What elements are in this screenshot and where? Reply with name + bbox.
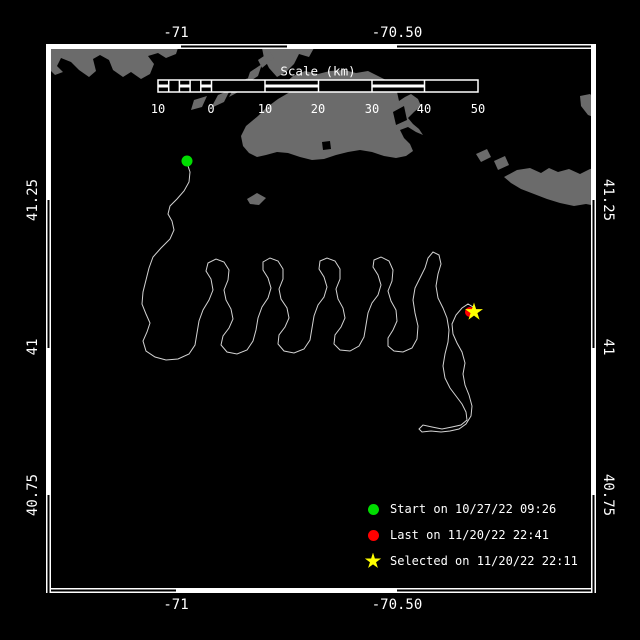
legend-start: Start on 10/27/22 09:26 — [364, 500, 556, 518]
bottom-lon-label-1: -71 — [163, 597, 188, 613]
left-lat-label-1: 41.25 — [25, 179, 41, 221]
map-canvas[interactable]: Scale (km) -71-70.50-71-70.5041.254140.7… — [0, 0, 640, 640]
scale-bar-stripe — [201, 85, 212, 88]
right-lat-label-3: 40.75 — [600, 474, 616, 516]
water-notch-pond — [322, 141, 331, 150]
left-lat-label-2: 41 — [25, 339, 41, 356]
frame-left — [46, 44, 51, 593]
star-icon — [364, 552, 382, 570]
left-lat-label-3: 40.75 — [25, 474, 41, 516]
legend-selected: Selected on 11/20/22 22:11 — [364, 552, 578, 570]
frame-bottom — [46, 588, 596, 593]
scale-bar-label-6: 50 — [471, 102, 485, 116]
frame-right — [591, 44, 596, 593]
scale-bar — [158, 80, 478, 92]
legend-last-label: Last on 11/20/22 22:41 — [390, 528, 549, 542]
legend-last: Last on 11/20/22 22:41 — [364, 526, 549, 544]
legend-selected-label: Selected on 11/20/22 22:11 — [390, 554, 578, 568]
scale-bar-label-0: 10 — [151, 102, 165, 116]
scale-bar-stripe — [158, 85, 169, 88]
legend-last-marker — [368, 530, 379, 541]
legend-start-marker — [368, 504, 379, 515]
scalebar-title: Scale (km) — [280, 64, 355, 79]
bottom-lon-label-2: -70.50 — [372, 597, 423, 613]
scale-bar-label-1: 0 — [207, 102, 214, 116]
dot-icon — [364, 500, 382, 518]
scale-bar-stripe — [372, 85, 425, 88]
frame-top — [46, 44, 596, 49]
legend-selected-marker — [365, 553, 382, 570]
map-plot[interactable] — [0, 0, 640, 640]
scale-bar-label-5: 40 — [417, 102, 431, 116]
right-lat-label-1: 41.25 — [600, 179, 616, 221]
scale-bar-label-2: 10 — [258, 102, 272, 116]
scale-bar-label-3: 20 — [311, 102, 325, 116]
scale-bar-label-4: 30 — [365, 102, 379, 116]
scale-bar-stripe — [265, 85, 319, 88]
start-marker[interactable] — [182, 156, 193, 167]
scale-bar-stripe — [179, 85, 190, 88]
legend-start-label: Start on 10/27/22 09:26 — [390, 502, 556, 516]
top-lon-label-2: -70.50 — [372, 25, 423, 41]
right-lat-label-2: 41 — [600, 339, 616, 356]
dot-icon — [364, 526, 382, 544]
top-lon-label-1: -71 — [163, 25, 188, 41]
